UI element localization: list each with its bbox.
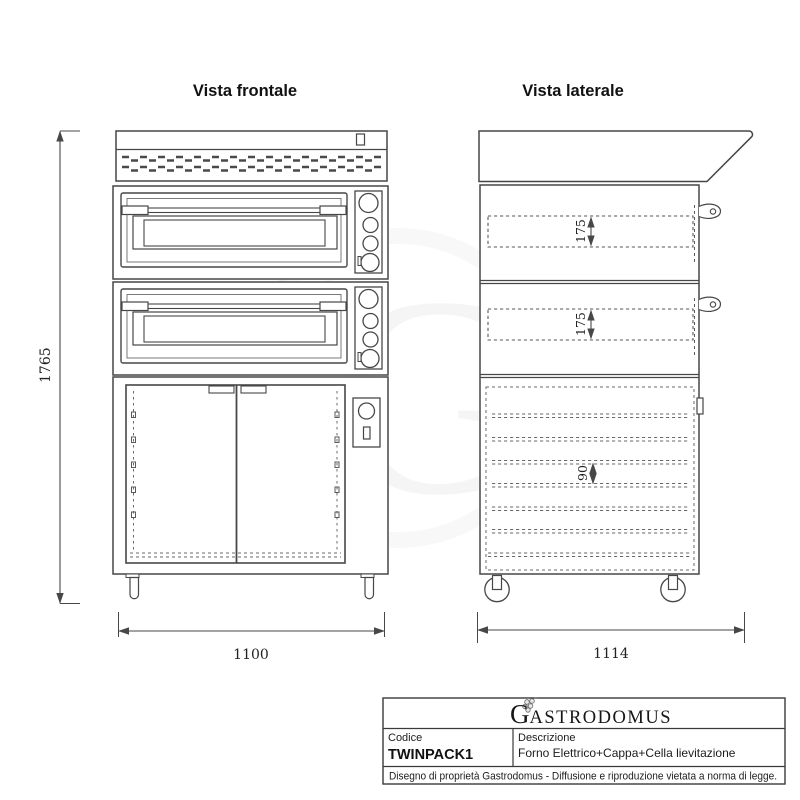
body-side <box>480 185 699 574</box>
hood-front <box>116 131 387 181</box>
dim-chamber-top: 175 <box>573 219 588 243</box>
cabinet-knob-icon <box>359 403 375 419</box>
proofing-cabinet-front <box>113 377 388 574</box>
dim-width-label: 1100 <box>233 647 269 663</box>
code-value: TWINPACK1 <box>388 747 473 763</box>
cell-door-handle <box>697 398 703 414</box>
cabinet-doors <box>126 385 345 563</box>
oven-deck-2 <box>113 282 388 375</box>
dim-height-label: 1765 <box>38 347 54 383</box>
cabinet-handle-left <box>209 386 234 393</box>
dim-depth-label: 1114 <box>593 646 629 662</box>
code-label: Codice <box>388 732 422 744</box>
hood-side <box>479 131 752 182</box>
power-switch-icon <box>364 427 371 439</box>
disclaimer-text: Disegno di proprietà Gastrodomus - Diffu… <box>389 771 777 783</box>
dim-overall-height: 1765 <box>38 131 80 604</box>
dim-front-width: 1100 <box>119 612 385 663</box>
drawing-canvas: G Vista frontale <box>0 0 800 800</box>
dim-shelf-spacing: 90 <box>575 465 590 481</box>
front-view-title: Vista frontale <box>193 82 297 100</box>
description-value: Forno Elettrico+Cappa+Cella lievitazione <box>518 746 736 760</box>
hood-light-switch-icon <box>357 134 365 145</box>
title-block: GASTRODOMUS Codice TWINPACK1 Descrizione… <box>383 698 785 784</box>
dim-chamber-bottom: 175 <box>573 312 588 336</box>
side-view: Vista laterale 175 175 <box>479 82 752 602</box>
side-view-title: Vista laterale <box>522 82 624 100</box>
description-label: Descrizione <box>518 732 575 744</box>
cabinet-handle-right <box>241 386 266 393</box>
technical-drawing-page: G Vista frontale <box>0 0 800 800</box>
dim-side-depth: 1114 <box>478 612 745 662</box>
front-view: Vista frontale <box>113 82 388 599</box>
oven-deck-1 <box>113 186 388 279</box>
